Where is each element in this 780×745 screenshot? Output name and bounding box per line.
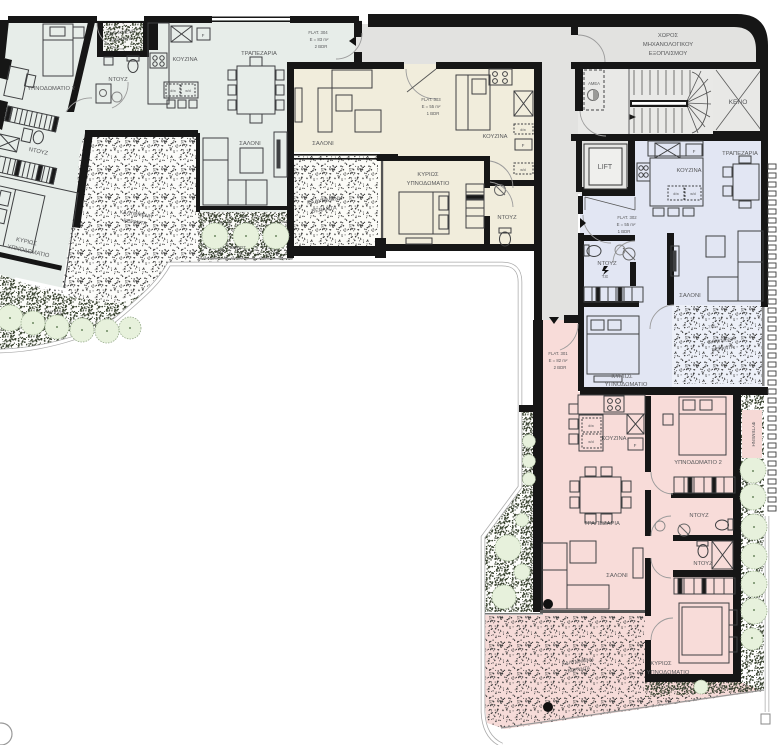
svg-text:ΣΑΛΟΝΙ: ΣΑΛΟΝΙ (239, 141, 261, 147)
svg-text:ΑΜΕΑ: ΑΜΕΑ (588, 81, 600, 86)
svg-text:LIFT: LIFT (598, 164, 613, 171)
svg-text:ΚΟΥΖΙΝΑ: ΚΟΥΖΙΝΑ (172, 57, 197, 63)
svg-text:d/w: d/w (520, 128, 526, 132)
svg-text:F: F (634, 443, 637, 448)
svg-text:ΚΥΡΙΩΣ: ΚΥΡΙΩΣ (611, 374, 633, 380)
svg-text:ΥΠΝΟΔΩΜΑΤΙΟ: ΥΠΝΟΔΩΜΑΤΙΟ (407, 181, 450, 187)
svg-text:ΚΟΥΖΙΝΑ: ΚΟΥΖΙΝΑ (482, 134, 507, 140)
svg-text:FLAT. 303: FLAT. 303 (421, 97, 441, 102)
svg-text:ΥΠΝΟΔΩΜΑΤΙΟ 2: ΥΠΝΟΔΩΜΑΤΙΟ 2 (27, 86, 75, 92)
svg-text:ΥΠΝΟΔΩΜΑΤΙΟ: ΥΠΝΟΔΩΜΑΤΙΟ (647, 670, 690, 676)
svg-text:1 BDR: 1 BDR (427, 111, 440, 116)
svg-text:w/d: w/d (185, 89, 191, 93)
svg-text:w/d: w/d (690, 192, 696, 196)
svg-text:F: F (693, 149, 696, 154)
svg-text:d/w: d/w (170, 89, 176, 93)
svg-text:F: F (522, 143, 525, 148)
svg-text:FLAT. 304: FLAT. 304 (308, 30, 328, 35)
svg-text:ΥΠΝΟΔΩΜΑΤΙΟ: ΥΠΝΟΔΩΜΑΤΙΟ (605, 382, 648, 388)
svg-text:ΜΗΧΑΝΟΛΟΓΙΚΟΥ: ΜΗΧΑΝΟΛΟΓΙΚΟΥ (643, 42, 693, 48)
svg-text:ΤΡΑΠΕΖΑΡΙΑ: ΤΡΑΠΕΖΑΡΙΑ (241, 51, 277, 57)
svg-text:ΤΡΑΠΕΖΑΡΙΑ: ΤΡΑΠΕΖΑΡΙΑ (584, 521, 620, 527)
svg-text:ΚΥΡΙΩΣ: ΚΥΡΙΩΣ (417, 172, 439, 178)
svg-text:d/w: d/w (673, 192, 679, 196)
svg-text:ΦΥΤΕΜΕΝΗ: ΦΥΤΕΜΕΝΗ (751, 422, 756, 447)
svg-text:E = 55 m²: E = 55 m² (422, 104, 441, 109)
svg-text:ΣΑΛΟΝΙ: ΣΑΛΟΝΙ (606, 573, 628, 579)
svg-text:ΣΑΛΟΝΙ: ΣΑΛΟΝΙ (679, 293, 701, 299)
svg-text:2 BDR: 2 BDR (554, 365, 567, 370)
svg-text:ΚΗΠΟΣ: ΚΗΠΟΣ (230, 245, 246, 250)
svg-text:FLAT. 302: FLAT. 302 (617, 215, 637, 220)
svg-text:d/w: d/w (588, 424, 594, 428)
svg-text:ΚΥΡΙΩΣ: ΚΥΡΙΩΣ (650, 661, 672, 667)
svg-text:E = 83 m²: E = 83 m² (310, 37, 329, 42)
svg-text:ΥΠΝΟΔΩΜΑΤΙΟ 2: ΥΠΝΟΔΩΜΑΤΙΟ 2 (674, 460, 722, 466)
svg-text:E = 82 m²: E = 82 m² (549, 358, 568, 363)
svg-text:ΝΤΟΥΖ: ΝΤΟΥΖ (689, 513, 709, 519)
svg-text:E = 55 m²: E = 55 m² (617, 222, 636, 227)
svg-text:ΚΟΥΖΙΝΑ: ΚΟΥΖΙΝΑ (676, 168, 701, 174)
svg-text:2 BDR: 2 BDR (315, 44, 328, 49)
svg-text:ΕΞΟΠΛΙΣΜΟΥ: ΕΞΟΠΛΙΣΜΟΥ (649, 51, 688, 57)
svg-text:w/d: w/d (520, 168, 526, 172)
svg-text:ΣΑΛΟΝΙ: ΣΑΛΟΝΙ (312, 141, 334, 147)
svg-text:ΚΕΝΟ: ΚΕΝΟ (729, 99, 748, 106)
svg-text:w/d: w/d (588, 440, 594, 444)
svg-text:FLAT. 301: FLAT. 301 (548, 351, 568, 356)
svg-text:ΝΤΟΥΖ: ΝΤΟΥΖ (693, 561, 713, 567)
svg-text:ΧΩΡΟΣ: ΧΩΡΟΣ (658, 33, 679, 39)
svg-text:ΝΤΟΥΖ: ΝΤΟΥΖ (108, 77, 128, 83)
svg-text:ΤΡΑΠΕΖΑΡΙΑ: ΤΡΑΠΕΖΑΡΙΑ (722, 151, 758, 157)
svg-text:1 BDR: 1 BDR (618, 229, 631, 234)
svg-text:ΚΟΥΖΙΝΑ: ΚΟΥΖΙΝΑ (601, 436, 626, 442)
svg-text:Τ.Ε: Τ.Ε (602, 274, 609, 279)
svg-text:ΝΤΟΥΖ: ΝΤΟΥΖ (497, 215, 517, 221)
svg-text:F: F (202, 33, 205, 38)
